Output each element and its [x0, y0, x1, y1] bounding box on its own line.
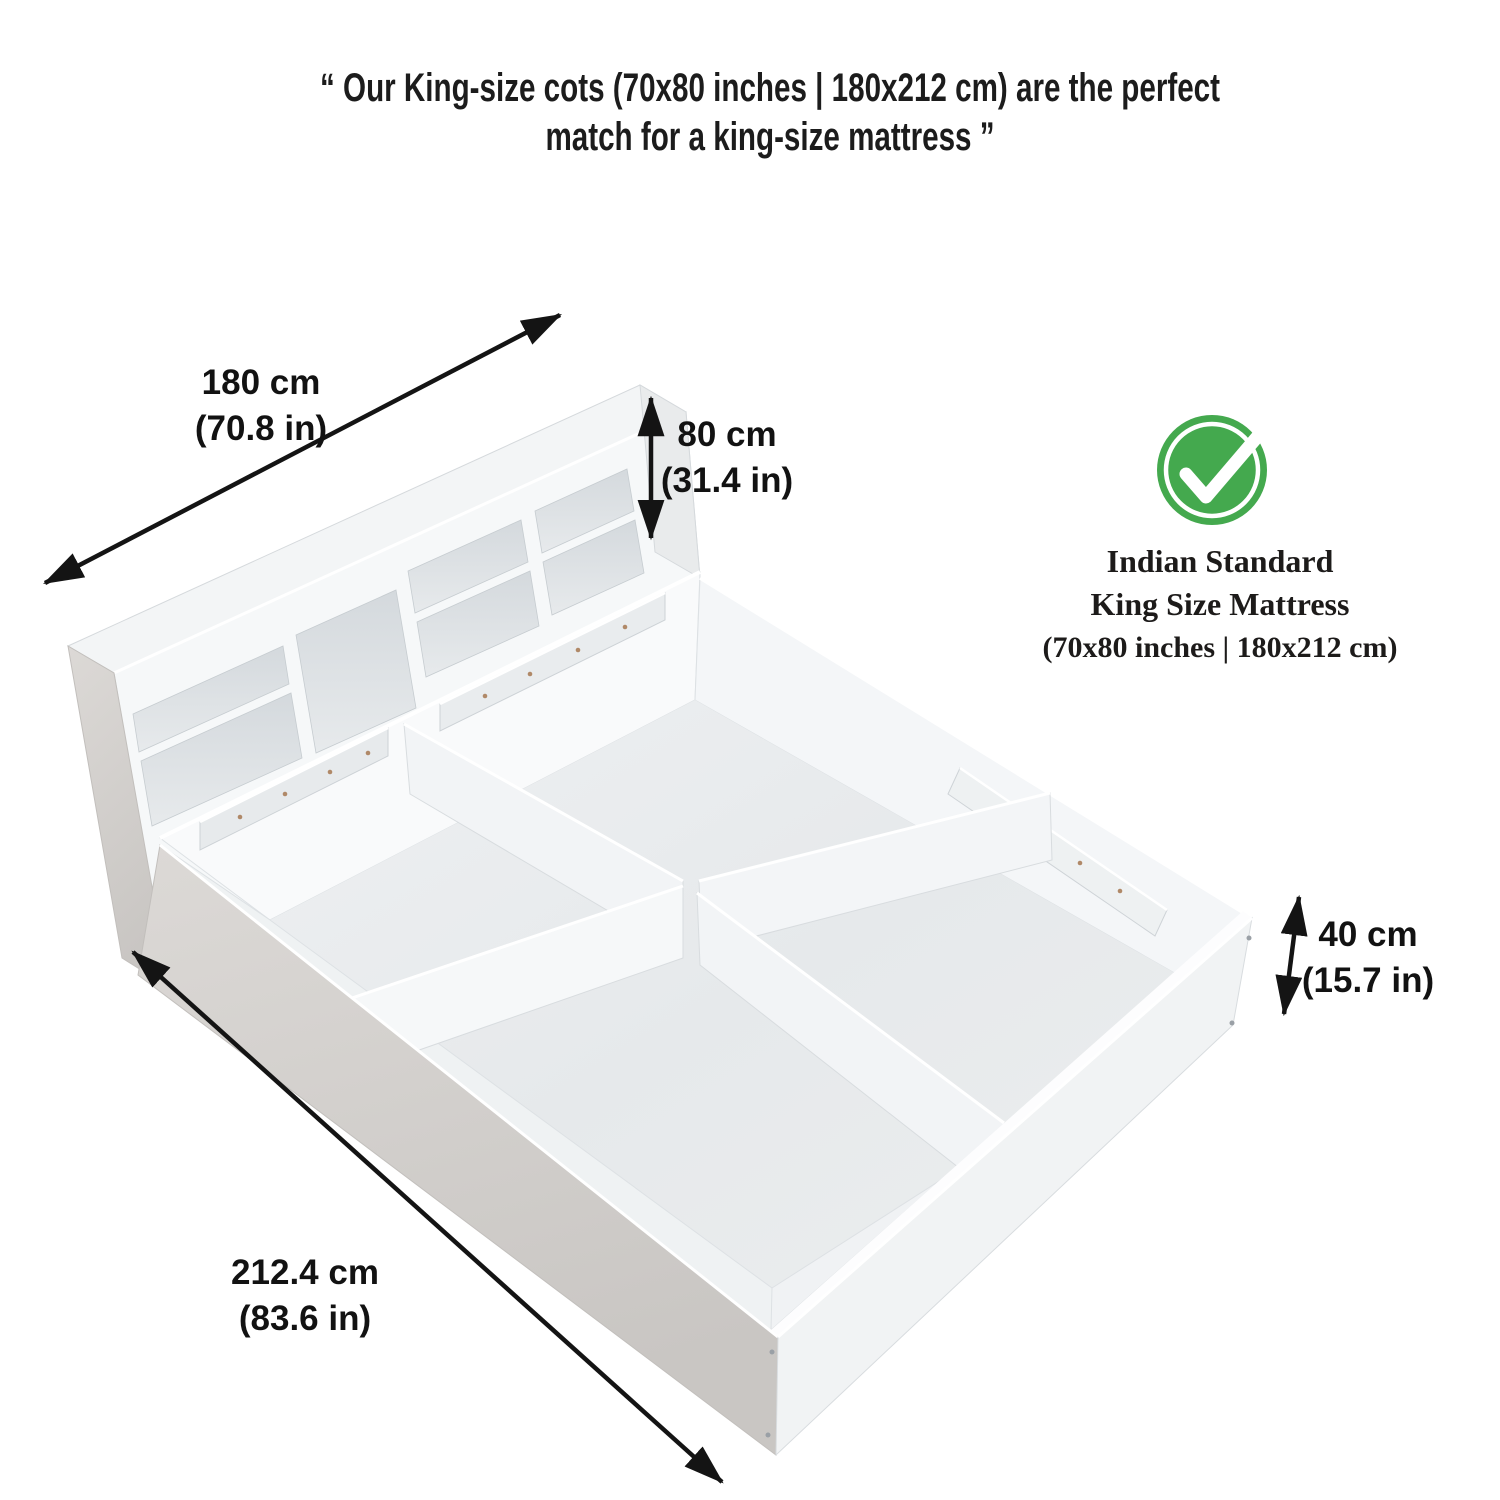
product-dimension-diagram: “ Our King-size cots (70x80 inches | 180… [0, 0, 1500, 1500]
badge-line3: (70x80 inches | 180x212 cm) [1043, 626, 1398, 669]
headboard-height-inches: (31.4 in) [661, 458, 793, 504]
mattress-standard-badge: Indian Standard King Size Mattress (70x8… [1043, 540, 1398, 669]
bed-illustration [0, 0, 1500, 1500]
badge-line1: Indian Standard [1043, 540, 1398, 583]
storage-height-cm: 40 cm [1302, 912, 1434, 958]
headboard-height-cm: 80 cm [661, 412, 793, 458]
storage-height-inches: (15.7 in) [1302, 958, 1434, 1004]
length-inches: (83.6 in) [231, 1296, 379, 1342]
width-dimension-label: 180 cm (70.8 in) [195, 360, 327, 452]
check-circle-icon [1157, 415, 1267, 525]
length-dimension-label: 212.4 cm (83.6 in) [231, 1250, 379, 1342]
width-inches: (70.8 in) [195, 406, 327, 452]
headline-line2: match for a king-size mattress ” [320, 113, 1220, 162]
badge-line2: King Size Mattress [1043, 583, 1398, 626]
headboard-height-dimension-label: 80 cm (31.4 in) [661, 412, 793, 504]
width-cm: 180 cm [195, 360, 327, 406]
length-cm: 212.4 cm [231, 1250, 379, 1296]
headline-quote: “ Our King-size cots (70x80 inches | 180… [320, 64, 1220, 162]
headline-line1: “ Our King-size cots (70x80 inches | 180… [320, 64, 1220, 113]
storage-height-arrow [1284, 897, 1299, 1014]
storage-height-dimension-label: 40 cm (15.7 in) [1302, 912, 1434, 1004]
